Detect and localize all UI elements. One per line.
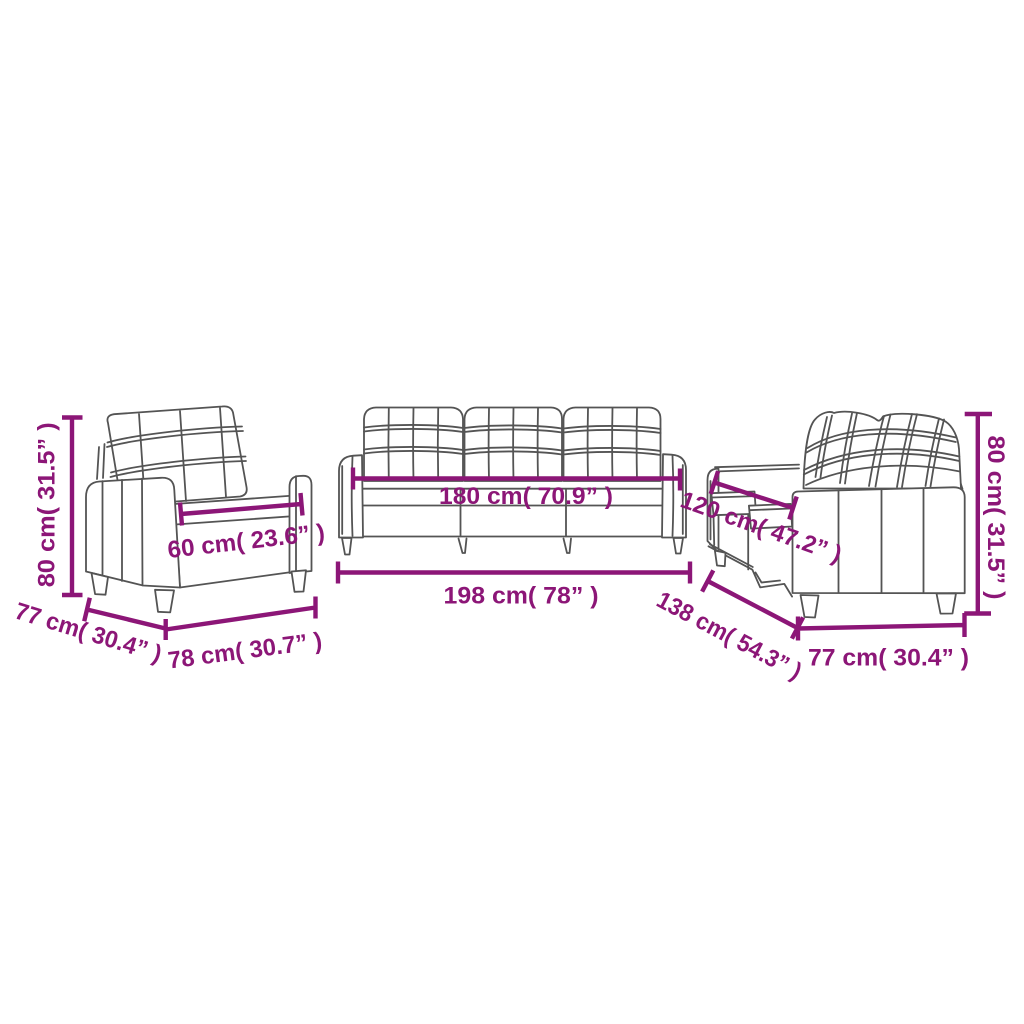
svg-text:80 cm( 31.5” ): 80 cm( 31.5” ) (982, 436, 1009, 600)
svg-text:180 cm( 70.9” ): 180 cm( 70.9” ) (439, 483, 613, 510)
svg-text:77 cm( 30.4” ): 77 cm( 30.4” ) (808, 644, 969, 671)
svg-text:198 cm( 78” ): 198 cm( 78” ) (444, 583, 599, 610)
svg-text:80 cm( 31.5” ): 80 cm( 31.5” ) (34, 422, 61, 587)
